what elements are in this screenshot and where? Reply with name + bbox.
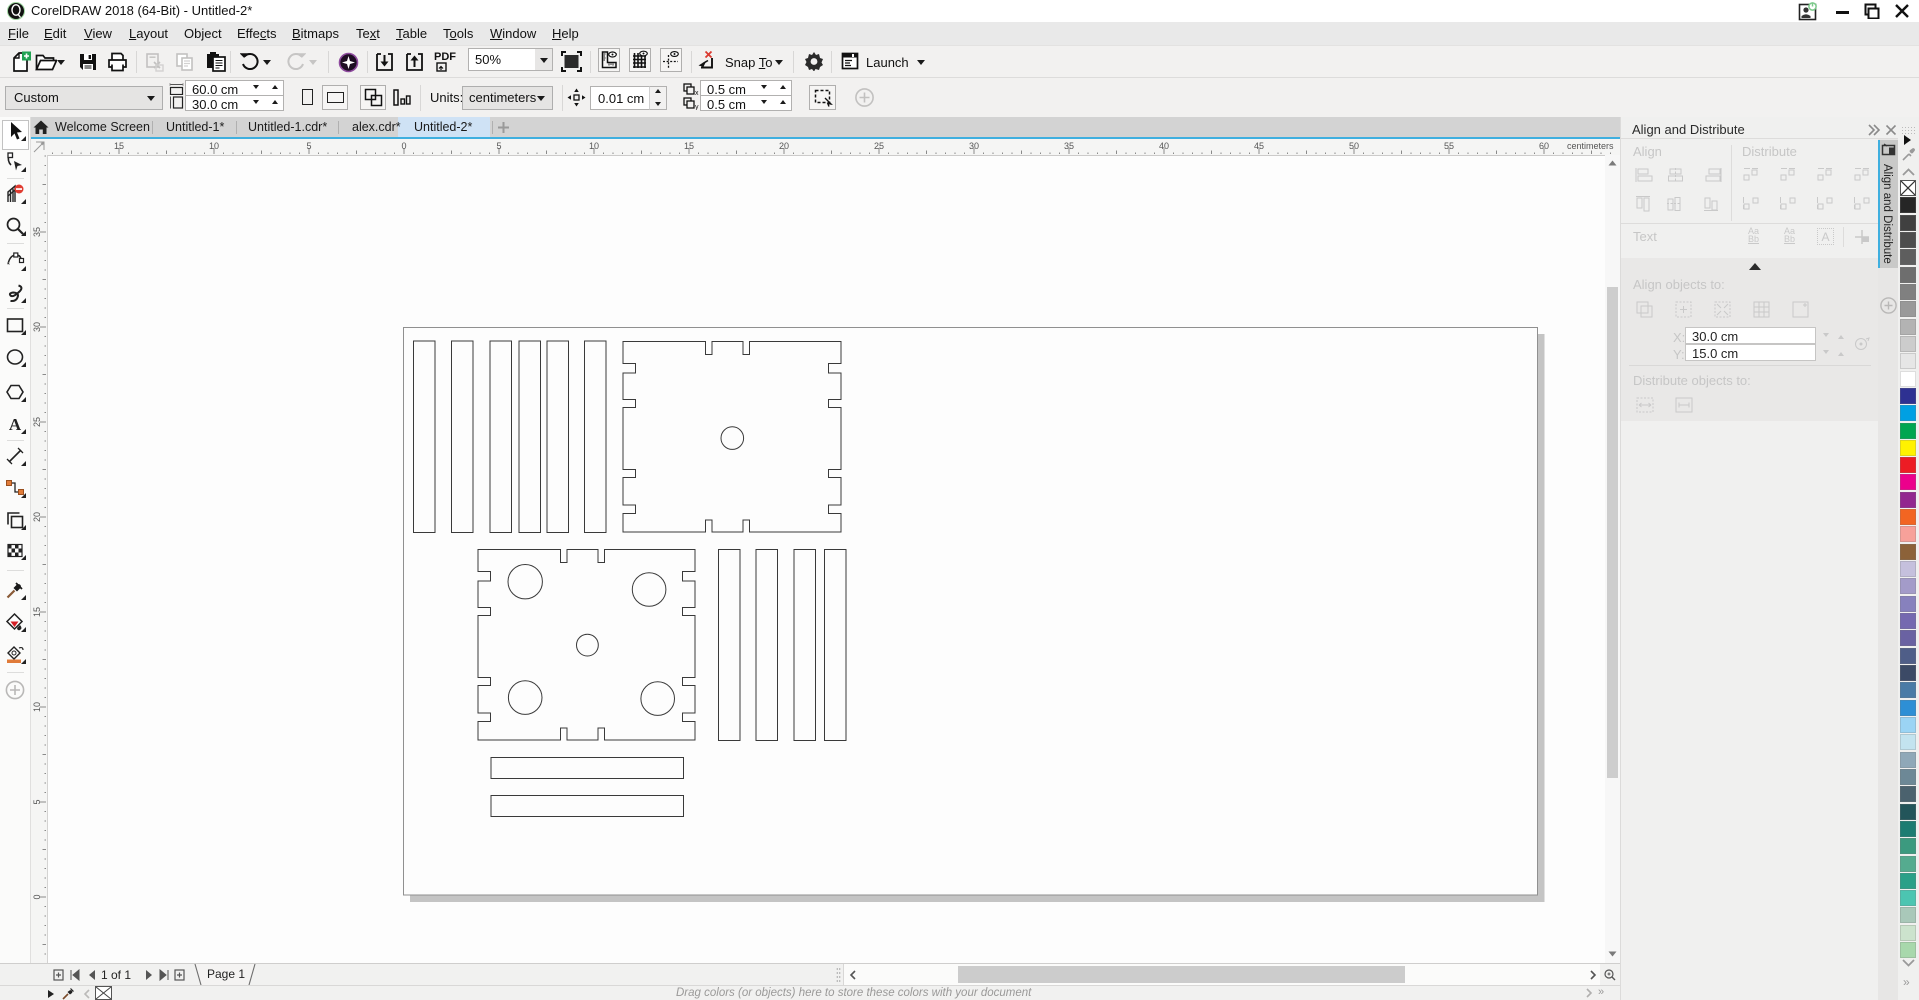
svg-text:20: 20 <box>779 141 789 151</box>
svg-text:5: 5 <box>496 141 501 151</box>
svg-text:y: y <box>695 104 699 110</box>
svg-text:40: 40 <box>1159 141 1169 151</box>
svg-text:60: 60 <box>1539 141 1549 151</box>
svg-text:A: A <box>9 415 22 434</box>
svg-text:15: 15 <box>32 607 42 617</box>
svg-text:x: x <box>695 90 699 96</box>
svg-text:30: 30 <box>32 322 42 332</box>
svg-text:15: 15 <box>114 141 124 151</box>
svg-text:35: 35 <box>1064 141 1074 151</box>
svg-text:centimeters: centimeters <box>1567 141 1614 151</box>
svg-text:5: 5 <box>32 799 42 804</box>
svg-text:10: 10 <box>209 141 219 151</box>
svg-text:55: 55 <box>1444 141 1454 151</box>
svg-text:25: 25 <box>32 417 42 427</box>
svg-text:0: 0 <box>32 894 42 899</box>
svg-text:0: 0 <box>401 141 406 151</box>
svg-text:10: 10 <box>32 702 42 712</box>
svg-text:25: 25 <box>874 141 884 151</box>
svg-text:50: 50 <box>1349 141 1359 151</box>
svg-text:30: 30 <box>969 141 979 151</box>
svg-text:45: 45 <box>1254 141 1264 151</box>
svg-text:5: 5 <box>306 141 311 151</box>
svg-text:20: 20 <box>32 512 42 522</box>
svg-text:10: 10 <box>589 141 599 151</box>
svg-text:35: 35 <box>32 227 42 237</box>
svg-text:15: 15 <box>684 141 694 151</box>
